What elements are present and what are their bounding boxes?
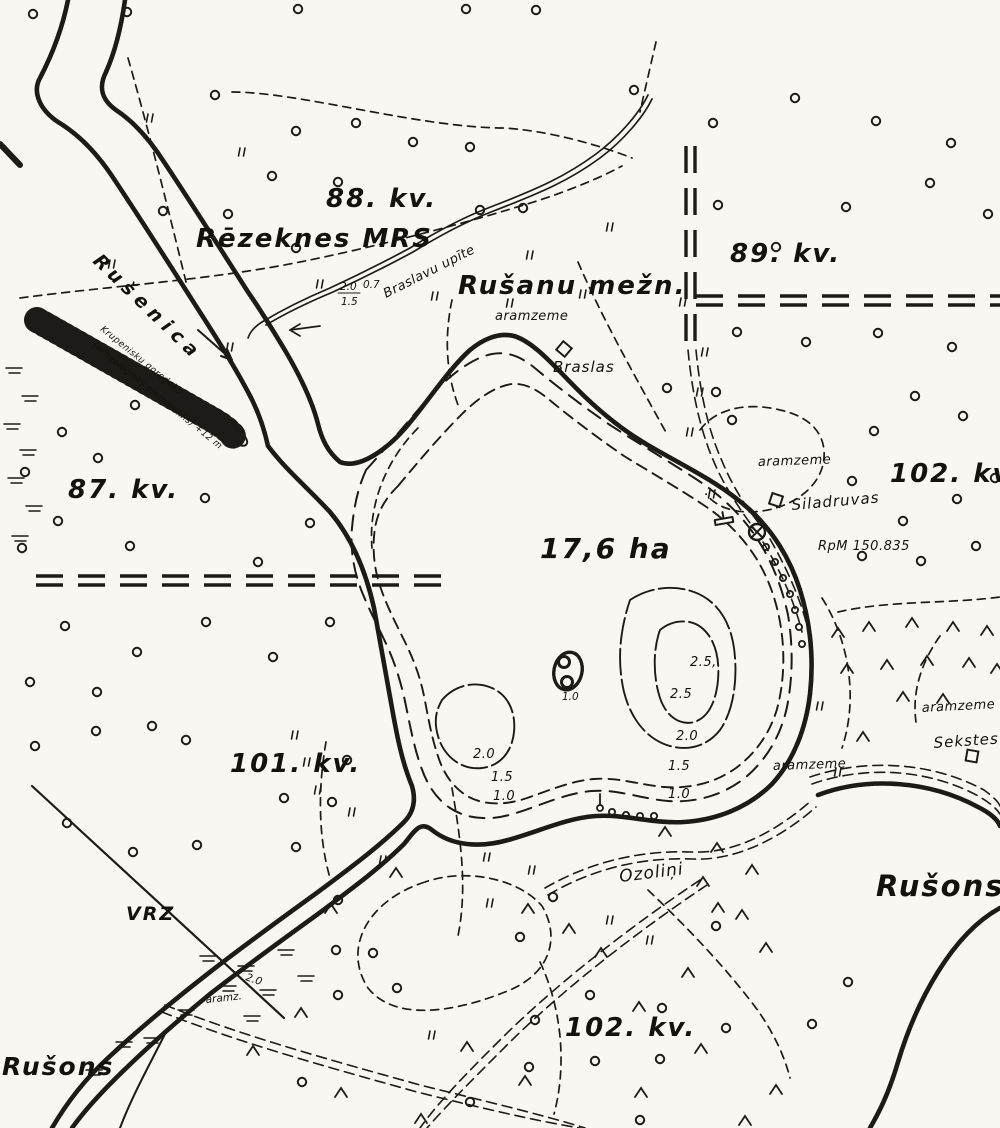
label-aramzeme-southeast: aramzeme xyxy=(773,756,847,774)
label-quarter-87: 87. kv. xyxy=(68,475,179,505)
label-aramzeme-north: aramzeme xyxy=(495,309,568,324)
label-quarter-102-south: 102. kv. xyxy=(565,1013,696,1043)
label-quarter-89: 89. kv. xyxy=(730,239,841,269)
label-rezeknes-mrs: Rēzeknes MRS xyxy=(196,224,433,254)
depth-label-east-25a: 2.5, xyxy=(690,655,717,670)
stream-depth-value: 1.5 xyxy=(341,296,358,308)
depth-label-west-20: 2.0 xyxy=(473,747,495,762)
label-vrz: VRZ xyxy=(126,903,175,925)
label-quarter-101: 101. kv. xyxy=(230,749,361,779)
stream-speed-value: 0.7 xyxy=(363,279,380,291)
paper-background xyxy=(0,0,1000,1128)
depth-label-east-20: 2.0 xyxy=(676,729,698,744)
map-canvas: Rušenica Krupenisku gorodoks (arheoloģis… xyxy=(0,0,1000,1128)
depth-label-east-15: 1.5 xyxy=(668,759,690,774)
depth-label-west-15: 1.5 xyxy=(491,770,513,785)
stream-width-value: 2.0 xyxy=(340,281,357,293)
label-lake-rusons-east: Rušons xyxy=(876,869,1000,903)
depth-label-east-25b: 2.5 xyxy=(670,687,692,702)
label-quarter-88: 88. kv. xyxy=(326,184,437,214)
label-quarter-102-east: 102. kv. xyxy=(890,459,1000,489)
scanned-map-page: Rušenica Krupenisku gorodoks (arheoloģis… xyxy=(0,0,1000,1128)
depth-label-west-10: 1.0 xyxy=(493,789,515,804)
label-lake-area: 17,6 ha xyxy=(540,532,672,565)
label-island-depth: 1.0 xyxy=(562,691,579,703)
label-aramzeme-east: aramzeme xyxy=(758,452,832,470)
label-lake-rusons-west: Rušons xyxy=(2,1052,114,1081)
label-braslas-farm: Braslas xyxy=(553,358,615,376)
label-forestry-district: Rušanu mežn. xyxy=(458,271,686,301)
depth-label-east-10: 1.0 xyxy=(668,787,690,802)
label-benchmark-elevation: RpM 150.835 xyxy=(818,539,910,554)
